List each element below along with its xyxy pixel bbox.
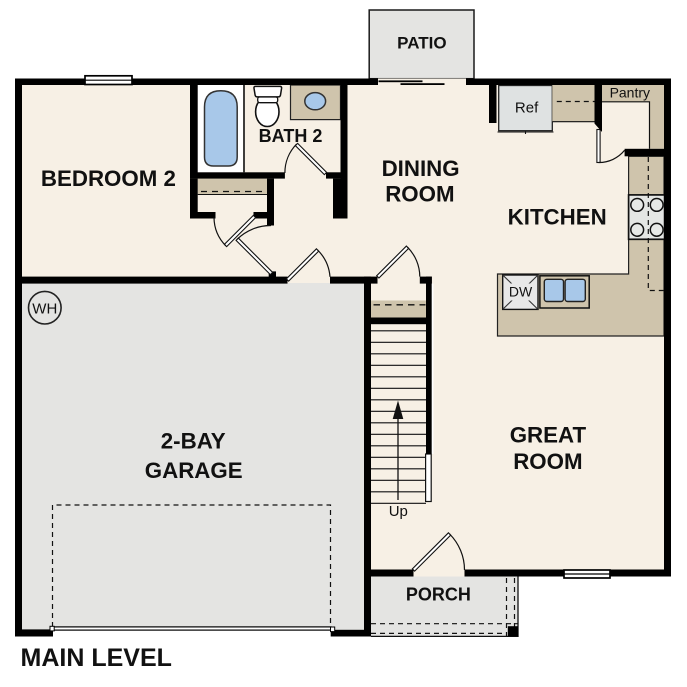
svg-text:Pantry: Pantry	[610, 85, 650, 101]
svg-text:KITCHEN: KITCHEN	[508, 205, 607, 230]
svg-text:BEDROOM 2: BEDROOM 2	[41, 166, 176, 191]
svg-text:GARAGE: GARAGE	[145, 458, 243, 483]
svg-text:WH: WH	[32, 301, 57, 318]
svg-text:DINING: DINING	[382, 156, 460, 181]
svg-text:PATIO: PATIO	[397, 34, 446, 53]
svg-text:BATH 2: BATH 2	[259, 126, 323, 146]
svg-text:ROOM: ROOM	[513, 449, 582, 474]
svg-text:GREAT: GREAT	[510, 422, 587, 447]
svg-text:MAIN LEVEL: MAIN LEVEL	[21, 644, 172, 672]
svg-text:ROOM: ROOM	[385, 182, 454, 207]
svg-text:2-BAY: 2-BAY	[161, 429, 226, 454]
svg-text:DW: DW	[509, 283, 533, 299]
svg-text:PORCH: PORCH	[406, 585, 471, 605]
svg-text:Ref: Ref	[515, 100, 539, 117]
svg-text:Up: Up	[389, 503, 408, 520]
